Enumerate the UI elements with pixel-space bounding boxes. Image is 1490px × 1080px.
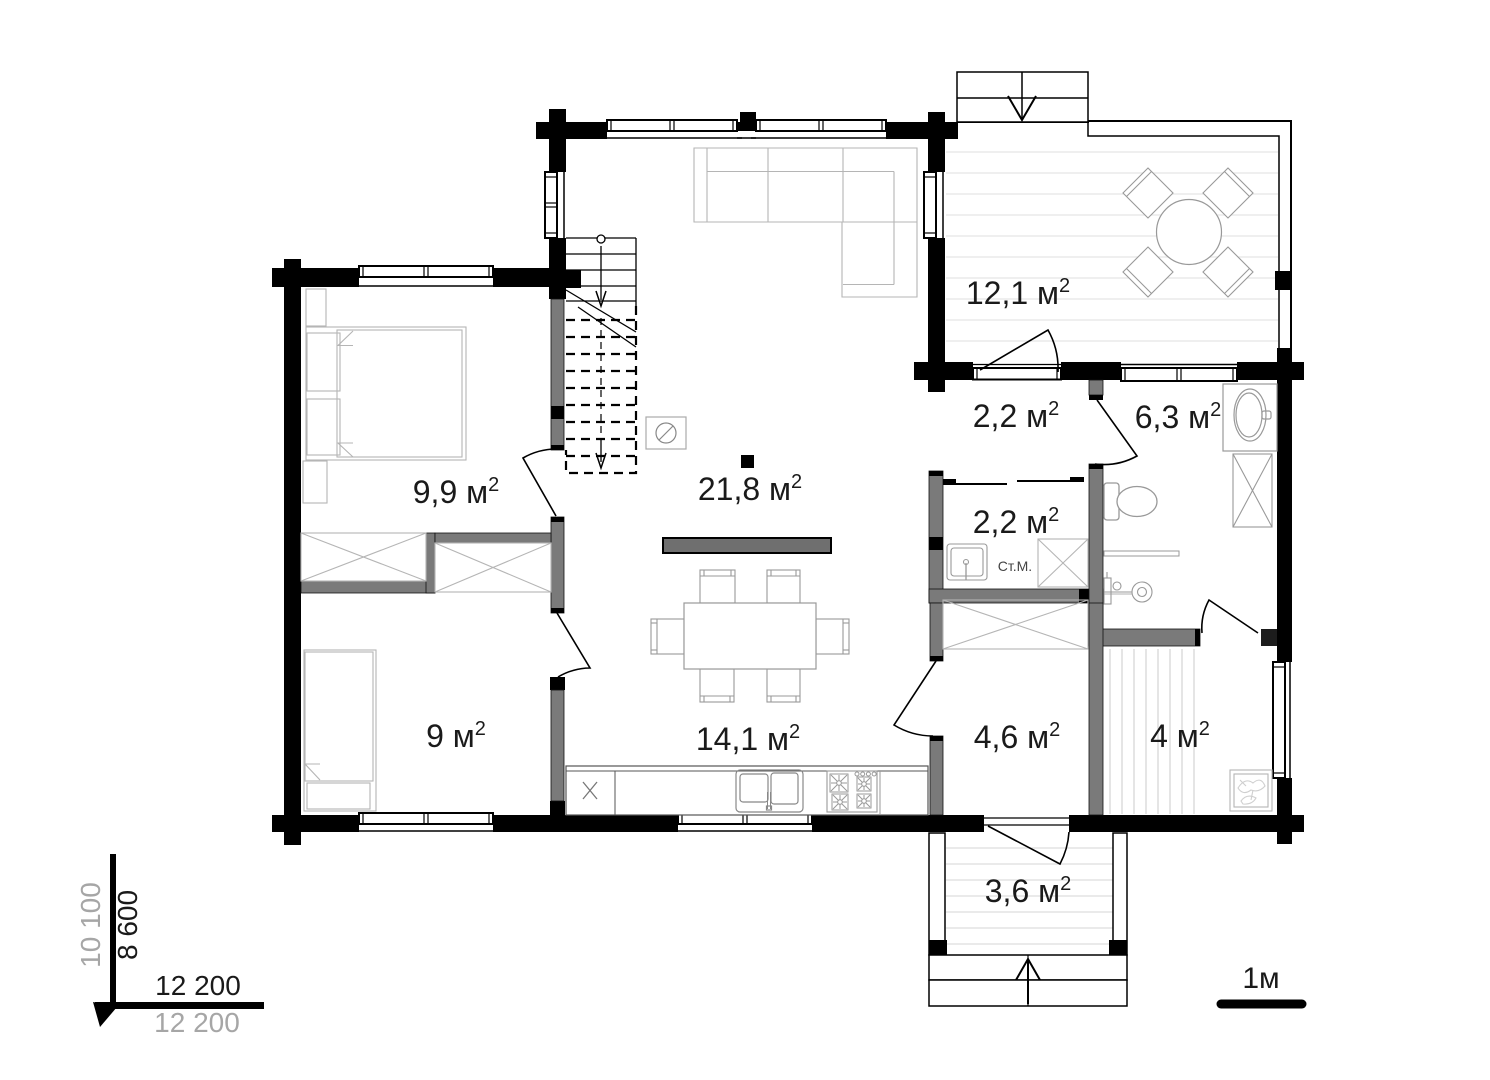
svg-text:2,2 м2: 2,2 м2 — [973, 398, 1060, 434]
svg-text:12 200: 12 200 — [155, 970, 241, 1001]
svg-text:Ст.М.: Ст.М. — [998, 558, 1032, 574]
svg-text:1м: 1м — [1242, 962, 1279, 995]
svg-text:14,1 м2: 14,1 м2 — [696, 721, 800, 757]
svg-text:2,2 м2: 2,2 м2 — [973, 504, 1060, 540]
svg-text:6,3 м2: 6,3 м2 — [1135, 399, 1222, 435]
svg-text:21,8 м2: 21,8 м2 — [698, 471, 802, 507]
svg-text:4,6 м2: 4,6 м2 — [974, 719, 1061, 755]
svg-text:9,9 м2: 9,9 м2 — [413, 474, 500, 510]
svg-text:10 100: 10 100 — [75, 882, 106, 968]
svg-text:12 200: 12 200 — [154, 1007, 240, 1038]
svg-text:12,1 м2: 12,1 м2 — [966, 275, 1070, 311]
svg-text:3,6 м2: 3,6 м2 — [985, 873, 1072, 909]
svg-text:8 600: 8 600 — [112, 890, 143, 960]
